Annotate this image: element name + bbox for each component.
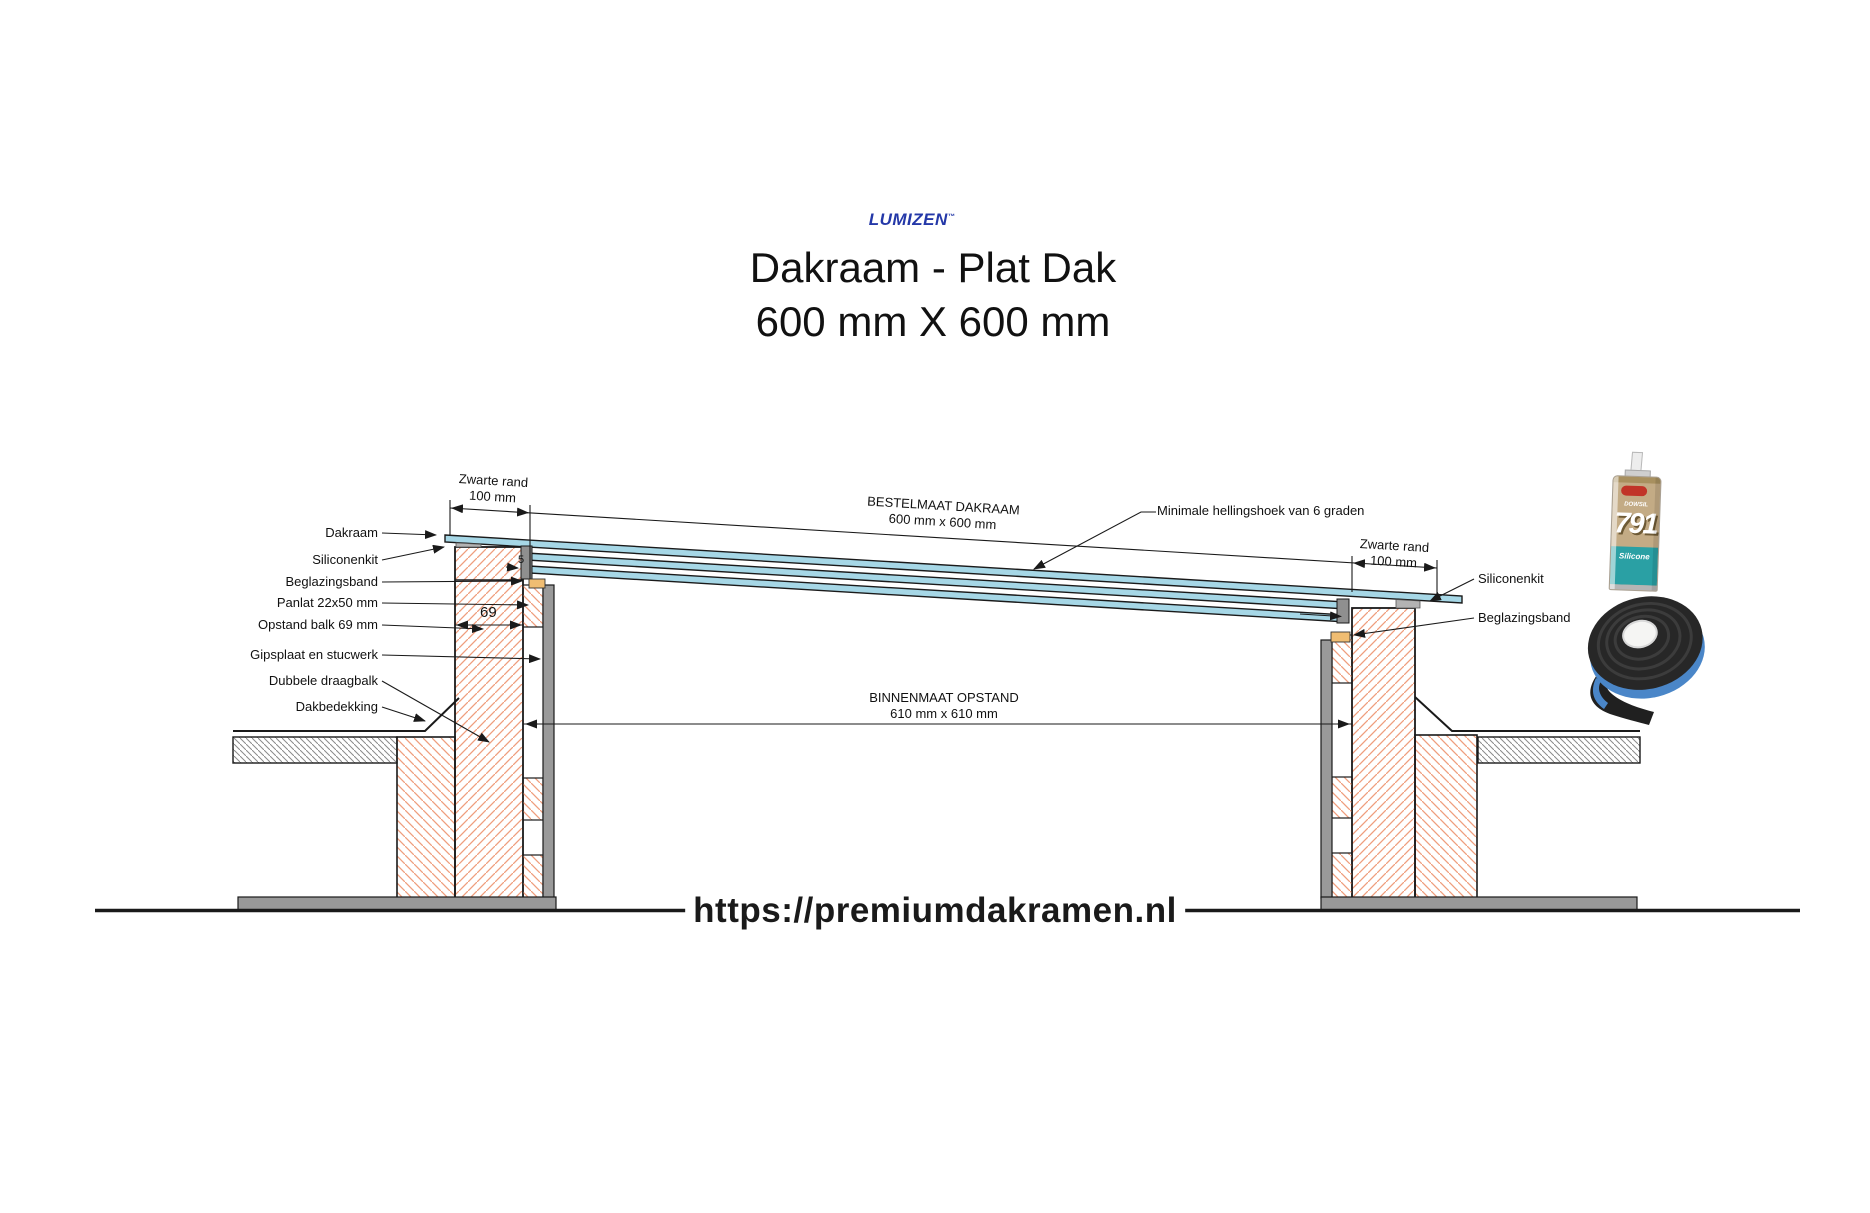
dim-zwarte-rand-left: Zwarte rand 100 mm: [442, 470, 544, 508]
cartridge-number: 791: [1611, 507, 1659, 542]
frame-profile-right: [1337, 599, 1349, 623]
siliconenkit-right-shape: [1396, 600, 1420, 609]
label-siliconenkit: Siliconenkit: [312, 552, 378, 567]
lumizen-logo-text: LUMIZEN: [869, 210, 948, 229]
lumizen-logo: LUMIZEN™: [852, 210, 972, 230]
upstand-right: [1321, 608, 1477, 898]
label-panlat: Panlat 22x50 mm: [277, 595, 378, 610]
dim-binnenmaat: BINNENMAAT OPSTAND 610 mm x 610 mm: [844, 690, 1044, 722]
label-dakbedekking: Dakbedekking: [296, 699, 378, 714]
website-url[interactable]: https://premiumdakramen.nl: [685, 891, 1185, 931]
label-opstand-balk: Opstand balk 69 mm: [258, 617, 378, 632]
cartridge-highlight-right: [1652, 478, 1661, 591]
beglazingsband-left-shape: [529, 579, 545, 588]
cartridge-type-text: Silicone: [1611, 551, 1658, 562]
upstand-left: [397, 547, 554, 898]
dim-binnenmaat-line1: BINNENMAAT OPSTAND: [844, 690, 1044, 706]
label-dubbele-draagbalk: Dubbele draagbalk: [269, 673, 378, 688]
glazing-panes: [445, 535, 1462, 622]
sealant-cartridge: DOWSIL 791 Silicone: [1609, 451, 1666, 595]
label-beglazingsband: Beglazingsband: [285, 574, 378, 589]
cartridge-body: DOWSIL 791 Silicone: [1609, 475, 1662, 592]
trademark-symbol: ™: [948, 213, 956, 220]
dim-binnenmaat-line2: 610 mm x 610 mm: [844, 706, 1044, 722]
cartridge-teal-band: Silicone: [1610, 546, 1658, 586]
base-plate-right: [1321, 897, 1637, 910]
base-plate-left: [238, 897, 556, 910]
label-dakraam: Dakraam: [325, 525, 378, 540]
label-beglazingsband-right: Beglazingsband: [1478, 610, 1571, 625]
dim-zwarte-rand-right: Zwarte rand 100 mm: [1343, 535, 1445, 573]
cartridge-brand-logo: [1621, 485, 1647, 496]
label-siliconenkit-right: Siliconenkit: [1478, 571, 1544, 586]
label-hellingshoek: Minimale hellingshoek van 6 graden: [1157, 503, 1364, 518]
dim-5: 5: [518, 553, 524, 568]
cartridge-top-cap: [1613, 476, 1660, 484]
label-gipsplaat: Gipsplaat en stucwerk: [250, 647, 378, 662]
cartridge-bottom-cap: [1610, 584, 1657, 591]
page-subtitle-size: 600 mm X 600 mm: [633, 298, 1233, 346]
beglazingsband-right-shape: [1331, 632, 1350, 642]
glazing-tape-roll: [1578, 584, 1715, 725]
dim-69: 69: [480, 605, 497, 620]
page-title: Dakraam - Plat Dak: [633, 244, 1233, 292]
